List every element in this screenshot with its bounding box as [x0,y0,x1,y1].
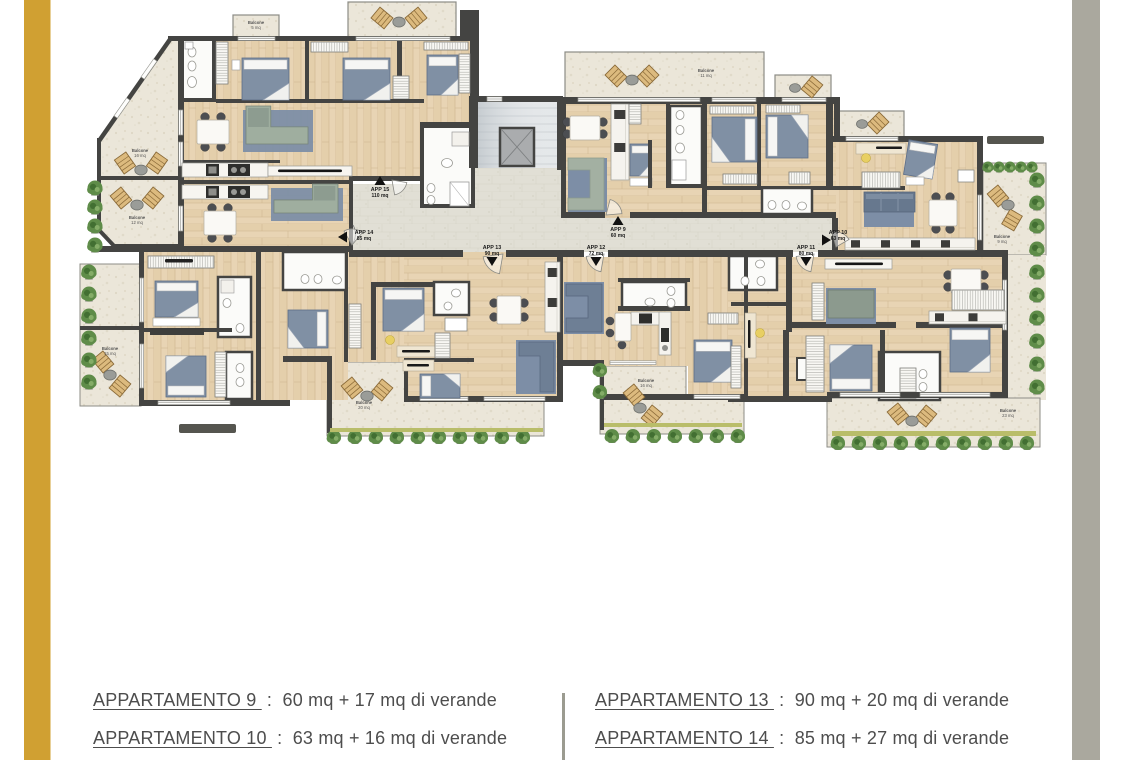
svg-text:72 mq: 72 mq [589,251,603,257]
svg-text:12 mq: 12 mq [131,220,143,225]
svg-text:23 mq: 23 mq [1002,413,1014,418]
svg-text:80 mq: 80 mq [799,251,813,257]
svg-text:63 mq: 63 mq [831,236,845,242]
svg-text:16 mq: 16 mq [134,153,146,158]
svg-text:16 mq: 16 mq [640,383,652,388]
svg-text:15 mq: 15 mq [104,351,116,356]
svg-text:11 mq: 11 mq [700,73,712,78]
svg-text:5 mq: 5 mq [251,25,261,30]
svg-text:85 mq: 85 mq [357,236,371,242]
svg-text:110 mq: 110 mq [372,193,389,199]
svg-text:60 mq: 60 mq [611,233,625,239]
svg-text:90 mq: 90 mq [485,251,499,257]
svg-text:20 mq: 20 mq [358,405,370,410]
svg-text:9 mq: 9 mq [997,239,1007,244]
